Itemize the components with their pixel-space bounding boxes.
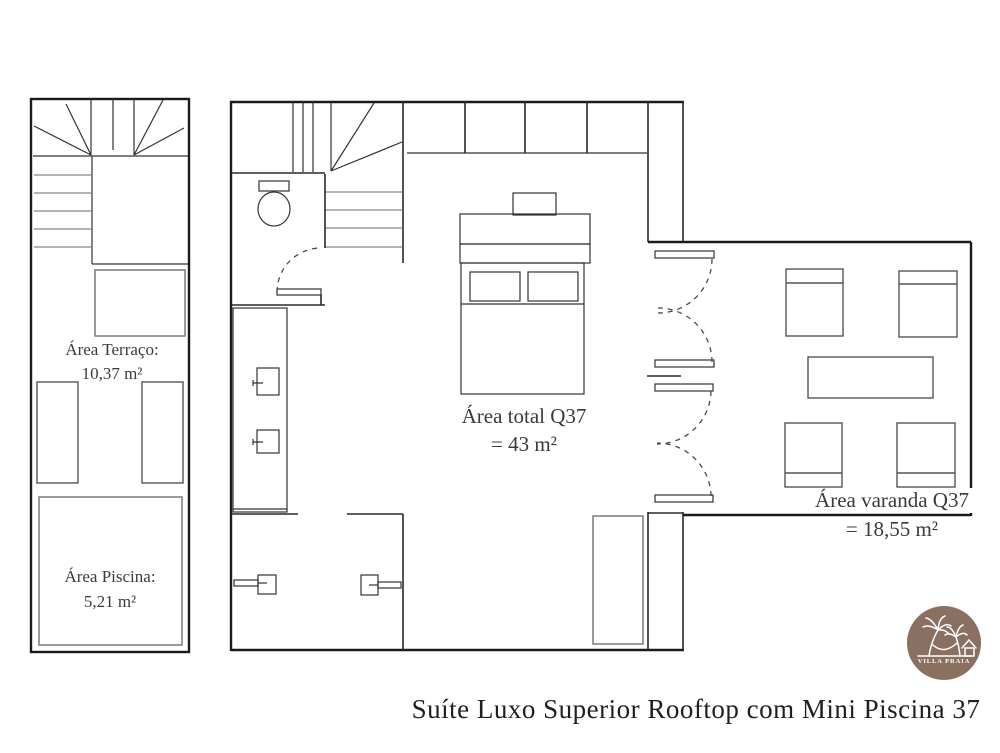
pillow-left xyxy=(470,272,520,301)
shower-fixture-left xyxy=(234,575,276,594)
brand-logo: VILLA PRAIA xyxy=(907,606,981,680)
floorplan-canvas: Área Terraço: 10,37 m² Área Piscina: 5,2… xyxy=(0,0,1000,753)
french-doors xyxy=(647,251,714,502)
toilet-icon xyxy=(258,181,290,226)
bathroom xyxy=(231,173,325,305)
shower-fixture-right xyxy=(361,575,401,595)
suite-stairs xyxy=(325,101,403,263)
veranda-table xyxy=(808,357,933,398)
brand-name: VILLA PRAIA xyxy=(907,658,981,665)
suite-area-value: = 43 m² xyxy=(424,432,624,457)
suite-unit xyxy=(230,101,714,651)
suite-walls xyxy=(230,101,684,651)
sun-lounger xyxy=(593,516,643,644)
veranda-chair-bottom-left xyxy=(785,423,842,487)
suite-area-label: Área total Q37 xyxy=(424,404,624,429)
plan-title: Suíte Luxo Superior Rooftop com Mini Pis… xyxy=(390,694,1000,725)
veranda-area-label: Área varanda Q37 xyxy=(792,488,992,513)
lounge-chair-right xyxy=(142,382,183,483)
pool-area-label: Área Piscina: xyxy=(25,567,195,587)
mattress xyxy=(461,263,584,394)
shower-room xyxy=(231,514,403,650)
lounge-chair-left xyxy=(37,382,78,483)
bed-head-shelf xyxy=(513,193,556,215)
veranda-chair-bottom-right xyxy=(897,423,955,487)
terrace-planter xyxy=(95,270,185,336)
terrace-area-label: Área Terraço: xyxy=(27,340,197,360)
palm-hammock-house-icon xyxy=(907,606,981,680)
bathroom-door xyxy=(277,248,321,295)
headboard xyxy=(460,214,590,244)
veranda-area-value: = 18,55 m² xyxy=(792,517,992,542)
terrace-area-value: 10,37 m² xyxy=(27,364,197,384)
veranda-chair-top-left xyxy=(786,269,843,336)
veranda xyxy=(648,242,971,516)
veranda-chair-top-right xyxy=(899,271,957,337)
pillow-right xyxy=(528,272,578,301)
pool-area-value: 5,21 m² xyxy=(25,592,195,612)
bed xyxy=(460,193,590,394)
vanity-counter xyxy=(233,308,287,512)
sink-1 xyxy=(257,368,279,395)
terrace-stairs xyxy=(33,99,188,264)
top-closet xyxy=(293,101,647,172)
